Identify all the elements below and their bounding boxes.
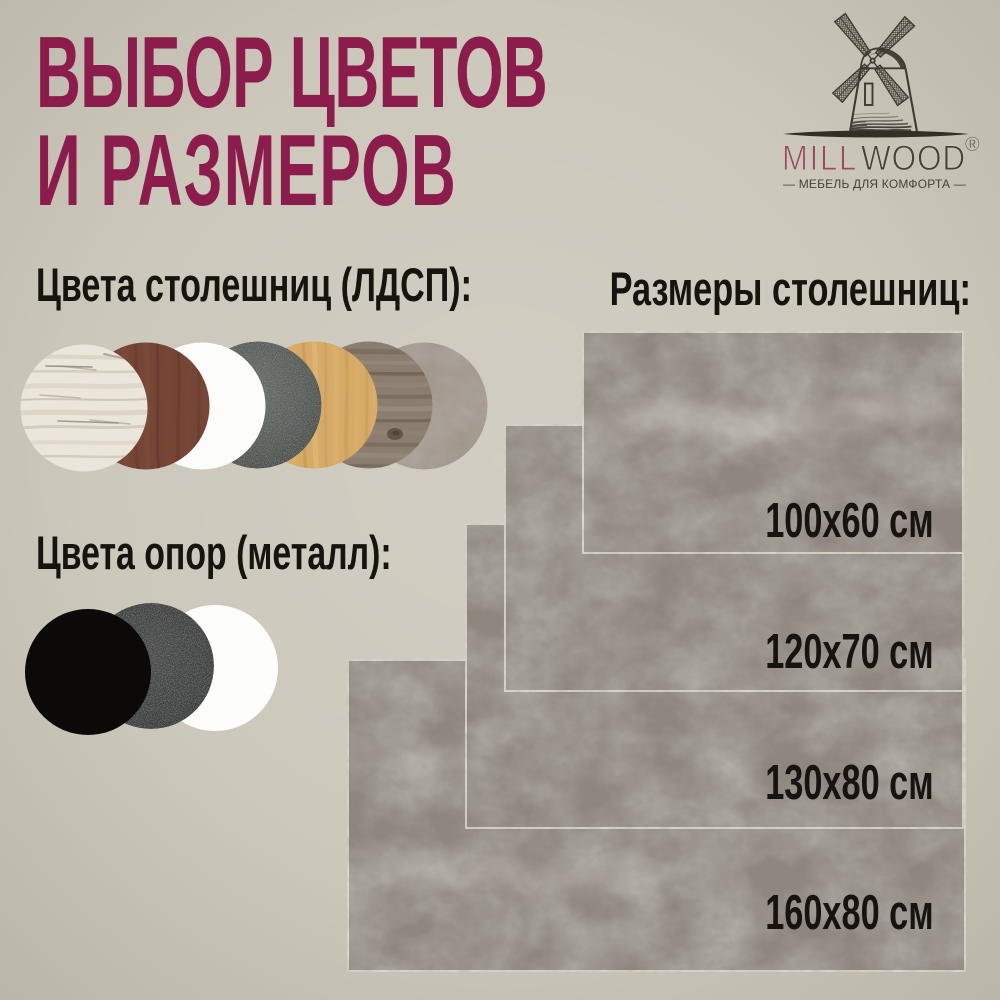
svg-text:MILL: MILL	[782, 138, 858, 178]
svg-text:®: ®	[965, 134, 980, 156]
svg-text:WOOD: WOOD	[861, 138, 966, 178]
svg-text:— МЕБЕЛЬ ДЛЯ КОМФОРТА —: — МЕБЕЛЬ ДЛЯ КОМФОРТА —	[783, 177, 967, 191]
